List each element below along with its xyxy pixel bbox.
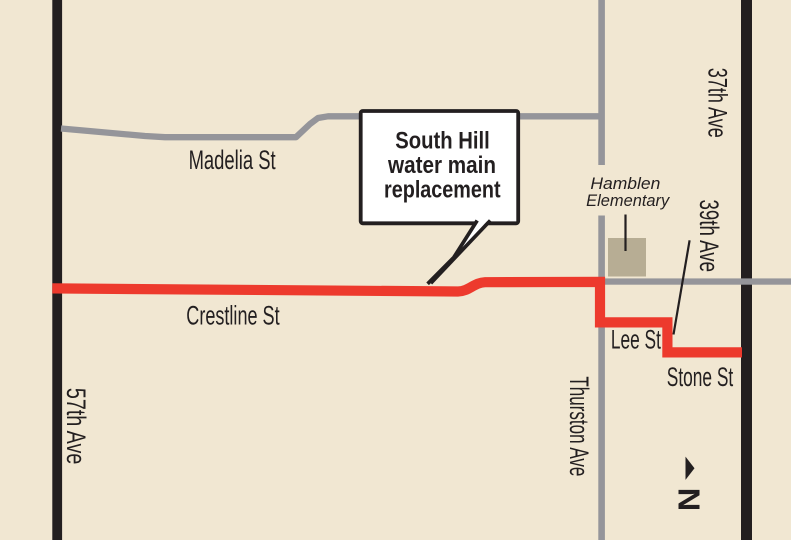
svg-text:57th Ave: 57th Ave: [61, 388, 91, 464]
svg-text:South Hill: South Hill: [395, 127, 490, 154]
svg-text:Lee St: Lee St: [611, 325, 661, 355]
svg-text:N: N: [672, 488, 707, 512]
svg-text:Hamblen: Hamblen: [590, 175, 660, 193]
svg-text:37th Ave: 37th Ave: [703, 68, 733, 138]
svg-text:replacement: replacement: [384, 176, 501, 203]
svg-text:Crestline St: Crestline St: [186, 300, 280, 330]
svg-text:Stone St: Stone St: [667, 362, 734, 392]
svg-text:Elementary: Elementary: [586, 192, 670, 210]
svg-text:water main: water main: [387, 152, 496, 179]
svg-text:39th Ave: 39th Ave: [694, 200, 724, 273]
svg-text:Madelia St: Madelia St: [189, 145, 276, 175]
svg-text:Thurston Ave: Thurston Ave: [564, 376, 594, 476]
